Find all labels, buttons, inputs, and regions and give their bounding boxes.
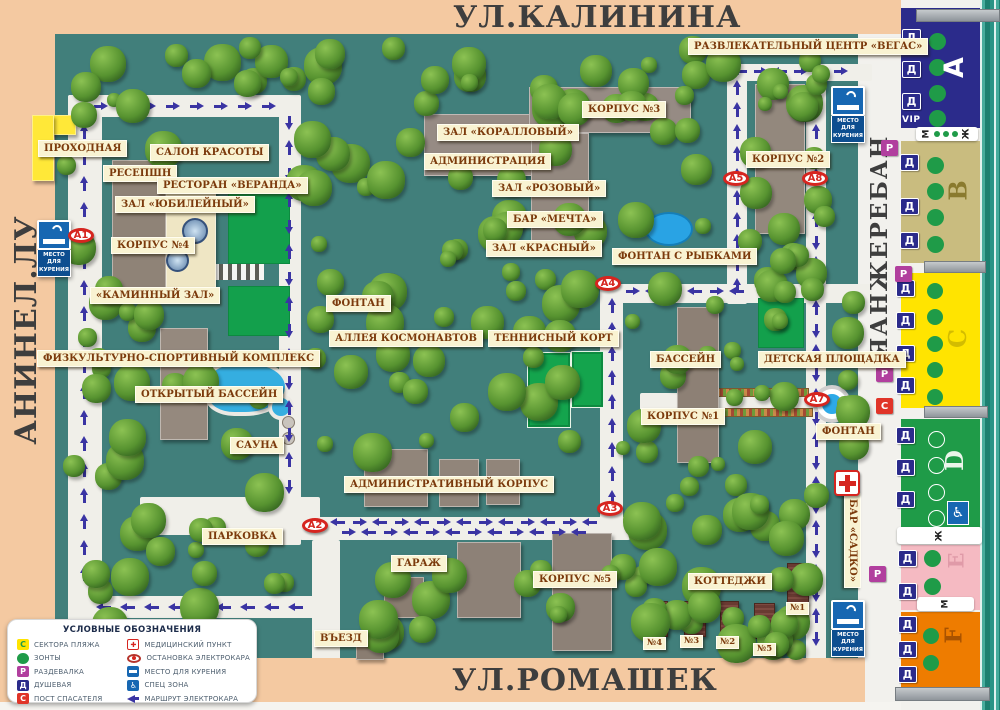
label-parkovka: ПАРКОВКА	[202, 528, 283, 545]
medical-cross-icon: ✚	[127, 639, 139, 650]
tree	[772, 313, 788, 329]
legend-item: СПОСТ СПАСАТЕЛЯ	[17, 693, 127, 704]
tree	[315, 39, 345, 69]
route-arrow-icon	[285, 141, 294, 156]
electrocar-stop-icon	[127, 654, 141, 663]
tree	[758, 97, 772, 111]
tree	[71, 102, 97, 128]
tree	[625, 314, 640, 329]
tree	[680, 477, 699, 496]
legend-item: ССЕКТОРА ПЛЯЖА	[17, 639, 127, 650]
tree	[488, 373, 526, 411]
tree	[334, 355, 368, 389]
cigarette-icon	[831, 86, 865, 116]
route-arrow-icon	[436, 518, 451, 527]
tree	[245, 473, 284, 512]
electrocar-stop-a2: А2	[302, 518, 328, 533]
tree	[812, 65, 830, 83]
tree	[523, 347, 544, 368]
route-arrow-icon	[404, 528, 419, 537]
umbrella-dot	[952, 131, 958, 137]
changing-badge: Д	[900, 232, 919, 249]
tree	[367, 161, 405, 199]
smoking-icon	[127, 666, 139, 677]
route-arrow-icon	[80, 541, 89, 556]
cigarette-icon	[831, 600, 865, 630]
umbrella-dot	[927, 362, 943, 378]
legend-icon-letter: С	[20, 640, 26, 649]
route-arrow-icon	[285, 401, 294, 416]
route-arrow-icon	[562, 518, 577, 527]
route-arrow-icon	[383, 528, 398, 537]
smoking-sign-line2: КУРЕНИЯ	[833, 647, 863, 654]
tree	[146, 537, 175, 566]
tree	[801, 278, 824, 301]
tree	[639, 548, 677, 586]
building	[552, 533, 612, 651]
tree	[192, 561, 217, 586]
tree	[675, 118, 700, 143]
label-krasny: ЗАЛ «КРАСНЫЙ»	[486, 240, 602, 257]
vip-label: VIP	[902, 115, 920, 125]
route-arrow-icon	[812, 631, 821, 646]
tree	[675, 86, 694, 105]
route-arrow-icon	[425, 528, 440, 537]
tree	[681, 154, 712, 185]
route-arrow-icon	[457, 518, 472, 527]
route-arrow-icon	[285, 115, 294, 130]
route-arrow-icon	[733, 103, 742, 118]
route-arrow-icon	[127, 693, 139, 704]
route-arrow-icon	[608, 395, 617, 410]
tree	[768, 213, 800, 245]
route-arrow-icon	[285, 479, 294, 494]
tree	[414, 91, 439, 116]
route-arrow-icon	[551, 528, 566, 537]
tree	[636, 441, 658, 463]
electrocar-stop-a1: А1	[68, 228, 94, 243]
smoking-sign: МЕСТО ДЛЯКУРЕНИЯ	[831, 86, 865, 143]
route-arrow-icon	[261, 102, 276, 111]
legend-item: ✚МЕДИЦИНСКИЙ ПУНКТ	[127, 639, 250, 650]
umbrella-dot	[928, 431, 945, 448]
label-kottedzhi: КОТТЕДЖИ	[688, 573, 772, 590]
route-arrow-icon	[530, 528, 545, 537]
sea-water	[980, 0, 1000, 710]
route-arrow-icon	[80, 203, 89, 218]
building	[677, 307, 719, 463]
crosswalk	[214, 264, 264, 280]
tree	[131, 503, 166, 538]
legend-title: УСЛОВНЫЕ ОБОЗНАЧЕНИЯ	[8, 620, 256, 635]
route-arrow-icon	[608, 347, 617, 362]
legend-item-label: МЕДИЦИНСКИЙ ПУНКТ	[144, 641, 231, 649]
route-arrow-icon	[341, 528, 356, 537]
changing-badge: Д	[902, 93, 921, 110]
tree	[353, 433, 392, 472]
label-yubileyny: ЗАЛ «ЮБИЛЕЙНЫЙ»	[115, 196, 255, 213]
tree	[461, 74, 478, 91]
tree	[82, 374, 111, 403]
legend-item-label: МАРШРУТ ЭЛЕКТРОКАРА	[144, 695, 238, 703]
route-arrow-icon	[265, 603, 280, 612]
route-arrow-icon	[733, 81, 742, 96]
lawn	[228, 286, 290, 336]
tree	[770, 248, 796, 274]
lifeguard-badge: С	[876, 398, 893, 414]
lifeguard-icon: С	[17, 693, 29, 704]
legend-item-label: ПОСТ СПАСАТЕЛЯ	[34, 695, 102, 703]
tree	[726, 389, 743, 406]
label-cottage3: №3	[680, 635, 703, 648]
umbrella-dot	[934, 131, 940, 137]
route-arrow-icon	[362, 528, 377, 537]
route-arrow-icon	[80, 515, 89, 530]
route-arrow-icon	[688, 287, 703, 296]
wc-male-label: М	[941, 600, 951, 609]
umbrella-dot	[923, 655, 939, 671]
tree	[409, 616, 436, 643]
tree	[182, 59, 211, 88]
label-admin_korpus: АДМИНИСТРАТИВНЫЙ КОРПУС	[344, 476, 554, 493]
umbrella-dot	[927, 209, 944, 226]
label-rozovy: ЗАЛ «РОЗОВЫЙ»	[492, 180, 606, 197]
tree	[382, 37, 405, 60]
label-cottage2: №2	[716, 636, 739, 649]
tree	[57, 156, 76, 175]
label-sauna: САУНА	[230, 437, 284, 454]
tree	[116, 89, 150, 123]
label-prohodnaya: ПРОХОДНАЯ	[38, 140, 127, 157]
label-kaminny: «КАМИННЫЙ ЗАЛ»	[90, 287, 220, 304]
tree	[838, 370, 858, 390]
route-arrow-icon	[80, 307, 89, 322]
route-arrow-icon	[80, 177, 89, 192]
electrocar-stop-a4: А4	[595, 276, 621, 291]
tree	[317, 436, 333, 452]
legend-item-label: ДУШЕВАЯ	[34, 681, 72, 689]
smoking-sign-line2: КУРЕНИЯ	[833, 133, 863, 140]
tree	[280, 68, 298, 86]
tree	[730, 357, 744, 371]
street-strip-top	[0, 0, 901, 34]
label-detskaya: ДЕТСКАЯ ПЛОЩАДКА	[758, 351, 906, 368]
tree	[502, 263, 520, 281]
tree	[558, 430, 581, 453]
tree	[421, 66, 449, 94]
route-arrow-icon	[733, 125, 742, 140]
label-fizkult: ФИЗКУЛЬТУРНО-СПОРТИВНЫЙ КОМПЛЕКС	[37, 350, 320, 367]
legend-item: ЗОНТЫ	[17, 653, 127, 664]
tree	[419, 433, 434, 448]
route-arrow-icon	[285, 427, 294, 442]
route-arrow-icon	[121, 603, 136, 612]
umbrella-dot	[929, 110, 946, 127]
label-fontan1: ФОНТАН	[326, 295, 391, 312]
tree	[71, 72, 101, 102]
beach-sector-letter-c: С	[943, 329, 972, 348]
route-arrow-icon	[285, 375, 294, 390]
tree	[308, 78, 335, 105]
umbrella-dot	[928, 510, 945, 527]
route-arrow-icon	[285, 297, 294, 312]
tree	[403, 379, 428, 404]
legend-item: МЕСТО ДЛЯ КУРЕНИЯ	[127, 666, 250, 677]
tree	[769, 521, 804, 556]
tree	[111, 558, 149, 596]
tree	[623, 502, 661, 540]
smoking-sign-text: МЕСТО ДЛЯКУРЕНИЯ	[831, 630, 865, 657]
changing-badge: Д	[902, 61, 921, 78]
tree	[773, 84, 788, 99]
pier	[924, 261, 986, 273]
route-arrow-icon	[499, 518, 514, 527]
route-arrow-icon	[520, 518, 535, 527]
tree	[650, 118, 677, 145]
route-arrow-icon	[509, 528, 524, 537]
tree	[63, 455, 85, 477]
changing-badge: Д	[898, 666, 917, 683]
tree	[78, 328, 97, 347]
route-arrow-icon	[285, 219, 294, 234]
route-arrow-icon	[80, 489, 89, 504]
tree	[434, 307, 454, 327]
label-korpus1: КОРПУС №1	[641, 408, 725, 425]
changing-badge: Д	[898, 583, 917, 600]
legend-right-column: ✚МЕДИЦИНСКИЙ ПУНКТОСТАНОВКА ЭЛЕКТРОКАРАМ…	[127, 639, 250, 704]
changing-room-icon: Р	[17, 666, 29, 677]
route-arrow-icon	[446, 528, 461, 537]
route-arrow-icon	[572, 528, 587, 537]
umbrella-dot	[923, 628, 939, 644]
umbrella-dot	[927, 236, 944, 253]
tree	[832, 317, 864, 349]
street-name-romashek: УЛ.РОМАШЕК	[452, 663, 718, 698]
tree	[294, 121, 331, 158]
changing-badge: Д	[896, 491, 915, 508]
route-arrow-icon	[812, 323, 821, 338]
changing-room-badge: Р	[876, 366, 893, 382]
tree	[264, 573, 285, 594]
wc-female-label: Ж	[961, 128, 971, 139]
route-arrow-icon	[285, 453, 294, 468]
label-administratsiya: АДМИНИСТРАЦИЯ	[424, 153, 551, 170]
umbrella-dot	[927, 309, 943, 325]
tree	[750, 495, 769, 514]
route-arrow-icon	[733, 279, 742, 294]
legend-icon-letter: С	[20, 694, 26, 703]
route-arrow-icon	[812, 235, 821, 250]
route-arrow-icon	[352, 518, 367, 527]
beach-sector-letter-f: F	[941, 627, 968, 643]
legend-item-label: ОСТАНОВКА ЭЛЕКТРОКАРА	[146, 654, 250, 662]
tree	[842, 291, 865, 314]
legend-icon-letter: Р	[20, 667, 26, 676]
label-cottage4: №4	[643, 637, 666, 650]
label-vezd: ВЪЕЗД	[314, 630, 368, 647]
umbrella-dot	[924, 550, 941, 567]
tree	[648, 272, 682, 306]
legend-item-label: МЕСТО ДЛЯ КУРЕНИЯ	[144, 668, 226, 676]
umbrella-dot	[927, 336, 943, 352]
umbrella-dot	[927, 157, 944, 174]
tree	[580, 55, 612, 87]
route-arrow-icon	[285, 271, 294, 286]
changing-badge: Д	[896, 312, 915, 329]
smoking-sign: МЕСТО ДЛЯКУРЕНИЯ	[831, 600, 865, 657]
tree	[706, 296, 724, 314]
route-arrow-icon	[812, 125, 821, 140]
label-fontan2: ФОНТАН	[816, 423, 881, 440]
wc-bar: МЖ	[916, 127, 978, 141]
legend-item-label: СЕКТОРА ПЛЯЖА	[34, 641, 100, 649]
street-name-naberezhnaya: ЯАНЖЕРЕБАН	[866, 140, 892, 358]
pier	[895, 687, 990, 701]
tree	[666, 494, 684, 512]
route-arrow-icon	[241, 603, 256, 612]
tree	[754, 385, 770, 401]
electrocar-stop-a7: А7	[804, 392, 830, 407]
tree	[317, 269, 344, 296]
route-arrow-icon	[285, 323, 294, 338]
tree	[774, 281, 796, 303]
street-name-kalinina: УЛ.КАЛИНИНА	[453, 0, 741, 35]
legend-item-label: СПЕЦ ЗОНА	[144, 681, 188, 689]
label-korpus2: КОРПУС №2	[746, 151, 830, 168]
legend-item: ОСТАНОВКА ЭЛЕКТРОКАРА	[127, 653, 250, 664]
route-arrow-icon	[478, 518, 493, 527]
tree	[769, 567, 794, 592]
route-arrow-icon	[217, 603, 232, 612]
route-arrow-icon	[812, 301, 821, 316]
label-korpus3: КОРПУС №3	[582, 101, 666, 118]
pier	[916, 9, 1000, 22]
umbrella-dot	[924, 578, 941, 595]
route-arrow-icon	[289, 603, 304, 612]
legend-left-column: ССЕКТОРА ПЛЯЖАЗОНТЫРРАЗДЕВАЛКАДДУШЕВАЯСП…	[17, 639, 127, 704]
route-arrow-icon	[394, 518, 409, 527]
label-cottage5: №5	[753, 643, 776, 656]
route-arrow-icon	[373, 518, 388, 527]
route-arrow-icon	[80, 411, 89, 426]
tree	[234, 70, 261, 97]
route-arrow-icon	[237, 102, 252, 111]
tree	[483, 218, 507, 242]
beach-sector-letter-a: А	[939, 57, 970, 78]
route-arrow-icon	[608, 467, 617, 482]
changing-badge: Д	[898, 616, 917, 633]
label-cottage1: №1	[786, 602, 809, 615]
medical-point-icon	[834, 470, 860, 496]
route-arrow-icon	[583, 518, 598, 527]
label-fontan_rybki: ФОНТАН С РЫБКАМИ	[612, 248, 757, 265]
umbrella-icon	[17, 653, 29, 664]
legend-item-label: РАЗДЕВАЛКА	[34, 668, 84, 676]
route-arrow-icon	[709, 287, 724, 296]
label-sadko: БАР «САДКО»	[844, 493, 861, 588]
tree	[692, 515, 722, 545]
changing-room-badge: Р	[869, 566, 886, 582]
tree	[239, 37, 261, 59]
route-arrow-icon	[145, 603, 160, 612]
route-arrow-icon	[488, 528, 503, 537]
tree	[814, 206, 835, 227]
label-veranda: РЕСТОРАН «ВЕРАНДА»	[157, 177, 308, 194]
changing-badge: Д	[898, 550, 917, 567]
tree	[770, 382, 799, 411]
wc-bar: Ж	[897, 527, 982, 544]
legend-item: МАРШРУТ ЭЛЕКТРОКАРА	[127, 693, 250, 704]
changing-badge: Д	[900, 198, 919, 215]
tree	[550, 606, 567, 623]
smoking-sign-line1: МЕСТО ДЛЯ	[833, 632, 863, 647]
label-tennis: ТЕННИСНЫЙ КОРТ	[488, 330, 619, 347]
umbrella-dot	[927, 389, 943, 405]
route-arrow-icon	[467, 528, 482, 537]
label-garazh: ГАРАЖ	[391, 555, 447, 572]
route-arrow-icon	[812, 521, 821, 536]
route-arrow-icon	[625, 287, 640, 296]
umbrella-dot	[929, 33, 946, 50]
tree	[413, 345, 445, 377]
label-basseyn_open: ОТКРЫТЫЙ БАССЕЙН	[135, 386, 283, 403]
legend-icon-letter: Д	[19, 681, 26, 690]
legend-item: ♿СПЕЦ ЗОНА	[127, 680, 250, 691]
label-korpus5: КОРПУС №5	[533, 571, 617, 588]
label-korpus4: КОРПУС №4	[111, 237, 195, 254]
label-alleya: АЛЛЕЯ КОСМОНАВТОВ	[329, 330, 483, 347]
pier	[924, 406, 988, 418]
route-arrow-icon	[733, 213, 742, 228]
wc-male-label: М	[921, 130, 931, 139]
route-arrow-icon	[608, 371, 617, 386]
route-arrow-icon	[608, 299, 617, 314]
tree	[396, 128, 425, 157]
route-arrow-icon	[541, 518, 556, 527]
tree	[804, 483, 829, 508]
route-arrow-icon	[213, 102, 228, 111]
label-basseyn: БАССЕЙН	[650, 351, 721, 368]
smoking-sign-text: МЕСТО ДЛЯКУРЕНИЯ	[831, 116, 865, 143]
changing-room-badge: Р	[881, 140, 898, 156]
tree	[618, 202, 654, 238]
umbrella-dot	[927, 183, 944, 200]
tree	[688, 590, 721, 623]
legend-item-label: ЗОНТЫ	[34, 654, 61, 662]
route-arrow-icon	[285, 245, 294, 260]
shower-icon: Д	[17, 680, 29, 691]
tree	[545, 365, 580, 400]
route-arrow-icon	[833, 67, 848, 76]
tree	[440, 251, 456, 267]
tree	[506, 281, 526, 301]
resort-map: УЛ.КАЛИНИНА УЛ.РОМАШЕК АНИНЕЛ.ЛУ ЯАНЖЕРЕ…	[0, 0, 1000, 710]
umbrella-dot	[929, 85, 946, 102]
route-arrow-icon	[812, 367, 821, 382]
umbrella-dot	[943, 131, 949, 137]
tree	[789, 92, 818, 121]
route-arrow-icon	[812, 609, 821, 624]
tree	[738, 430, 772, 464]
electrocar-stop-a3: А3	[597, 501, 623, 516]
electrocar-stop-a8: А8	[802, 171, 828, 186]
label-vegas: РАЗВЛЕКАТЕЛЬНЫЙ ЦЕНТР «ВЕГАС»	[688, 38, 928, 55]
wheelchair-icon: ♿	[947, 501, 969, 525]
tree	[695, 218, 711, 234]
tree	[134, 300, 164, 330]
route-arrow-icon	[331, 518, 346, 527]
route-arrow-icon	[608, 419, 617, 434]
